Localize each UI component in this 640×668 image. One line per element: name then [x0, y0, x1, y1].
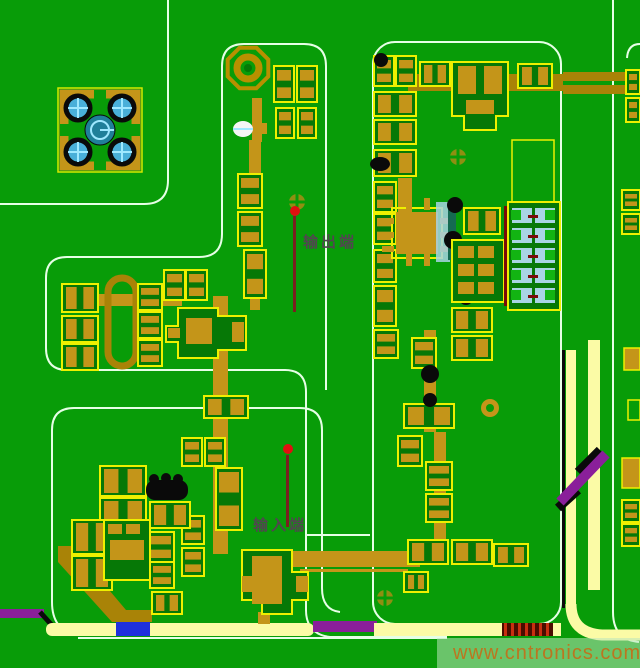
- pad: [170, 595, 178, 611]
- header-pad-green: [545, 270, 555, 280]
- trace-hatch-bar: [525, 623, 528, 636]
- pad: [478, 282, 494, 294]
- trace-pale-tail: [553, 623, 561, 636]
- pad: [167, 274, 182, 282]
- pad: [377, 334, 395, 342]
- pad: [412, 543, 424, 561]
- smd-component: [404, 572, 428, 592]
- smd-component-edge: [626, 70, 640, 94]
- header-pad-green: [545, 210, 555, 220]
- header-trace: [528, 235, 538, 238]
- pad: [401, 440, 419, 448]
- input-port-label: 输入端: [253, 518, 307, 533]
- pad: [538, 67, 548, 85]
- pad: [429, 466, 449, 474]
- qfn-pin: [406, 198, 412, 210]
- trace-pale-vertical: [566, 350, 576, 608]
- component-black: [149, 474, 159, 484]
- pad: [429, 498, 449, 506]
- pad: [434, 407, 450, 425]
- marker-dot-input: [283, 444, 293, 454]
- smd-component: [138, 340, 162, 366]
- pad: [625, 201, 637, 206]
- pad: [399, 60, 413, 68]
- pad: [66, 347, 77, 367]
- pad: [625, 194, 637, 199]
- trace-input-feed: [288, 551, 420, 567]
- pad: [377, 346, 395, 354]
- pad: [377, 310, 393, 322]
- pad: [141, 288, 159, 295]
- pad: [458, 282, 474, 294]
- header-trace: [528, 295, 538, 298]
- qfn-pin: [382, 246, 394, 252]
- pad: [83, 287, 94, 309]
- pad: [458, 246, 474, 258]
- qfn-plate: [396, 212, 438, 254]
- pad: [476, 339, 488, 357]
- header-pad-green: [511, 270, 521, 280]
- pad: [141, 316, 159, 323]
- pad: [230, 399, 244, 415]
- pad: [128, 469, 142, 493]
- pad: [418, 575, 424, 589]
- pad: [154, 505, 166, 525]
- pad: [76, 559, 88, 587]
- header-pad-green: [511, 230, 521, 240]
- pad: [625, 528, 637, 533]
- pad: [484, 66, 502, 94]
- pad: [408, 575, 414, 589]
- trace-hatch-bar: [532, 623, 535, 636]
- smd-component-edge: [622, 190, 640, 210]
- smd-component-edge: [622, 524, 640, 546]
- pad: [478, 264, 494, 276]
- header-pad-green: [545, 250, 555, 260]
- pad: [399, 95, 412, 113]
- trace-output-line: [249, 140, 261, 176]
- pad: [174, 505, 186, 525]
- pad: [522, 67, 532, 85]
- pad: [456, 543, 468, 561]
- pad: [83, 347, 94, 367]
- header-pad-green: [545, 230, 555, 240]
- pad: [514, 547, 524, 563]
- pad: [110, 540, 144, 560]
- watermark-band: www.cntronics.com: [437, 638, 640, 668]
- trace-hatch-bar: [518, 623, 521, 636]
- pad: [277, 70, 291, 81]
- pad: [498, 547, 508, 563]
- smd-component-edge: [622, 214, 640, 234]
- pcb-layout-screenshot: 输出端 输入端 www.cntronics.com: [0, 0, 640, 668]
- sma-slot: [60, 124, 69, 136]
- pad: [629, 74, 637, 80]
- marker-line-output: [293, 216, 296, 312]
- pad: [241, 194, 259, 204]
- pad: [301, 112, 313, 120]
- pad: [153, 566, 171, 573]
- trace-pale-bottom: [374, 623, 504, 636]
- pad: [156, 595, 164, 611]
- smd-component-edge: [622, 500, 640, 522]
- smd-component-edge: [626, 98, 640, 122]
- trace-blue-segment: [116, 622, 150, 636]
- pad: [167, 288, 182, 296]
- pad: [208, 442, 222, 450]
- watermark-text: www.cntronics.com: [437, 642, 640, 665]
- pad: [429, 478, 449, 486]
- pad: [185, 532, 201, 540]
- trace-hatch-bar: [504, 623, 507, 636]
- pad: [126, 524, 140, 534]
- pad: [468, 211, 479, 231]
- trace-hatch-bar: [539, 623, 542, 636]
- pad: [241, 216, 259, 226]
- pad: [241, 178, 259, 188]
- pad: [629, 84, 637, 90]
- pad-edge: [622, 458, 640, 488]
- pad: [279, 112, 291, 120]
- sma-slot: [94, 161, 106, 170]
- pad: [415, 356, 433, 364]
- trace-shadow: [562, 350, 565, 608]
- pad: [485, 211, 496, 231]
- header-redline: [504, 206, 507, 306]
- trace-pale-bottom: [46, 623, 314, 636]
- pad: [279, 126, 291, 134]
- pad: [377, 290, 393, 302]
- pad: [401, 454, 419, 462]
- trace-purple-bottom: [313, 621, 377, 632]
- pad: [458, 264, 474, 276]
- pad: [151, 550, 171, 558]
- component-black: [173, 474, 183, 484]
- pad: [151, 536, 171, 544]
- trace-output-line: [252, 98, 262, 142]
- pcb-canvas: [0, 0, 640, 668]
- pad: [625, 225, 637, 230]
- header-pad-green: [511, 250, 521, 260]
- pad: [186, 318, 212, 344]
- pad: [456, 339, 468, 357]
- pad: [377, 74, 391, 82]
- via-black: [423, 393, 437, 407]
- pad: [104, 469, 118, 493]
- pad: [66, 287, 77, 309]
- header-pad-green: [545, 290, 555, 300]
- pad: [424, 65, 432, 83]
- pad: [232, 322, 244, 342]
- component-black: [161, 473, 171, 483]
- via-black: [374, 53, 388, 67]
- pad: [66, 319, 77, 339]
- pad: [301, 126, 313, 134]
- pad: [377, 269, 393, 278]
- pad: [456, 311, 468, 329]
- trace-purple-left: [0, 609, 44, 618]
- pad: [429, 510, 449, 518]
- smd-component: [138, 284, 162, 310]
- pad: [415, 342, 433, 350]
- pad: [438, 65, 446, 83]
- pad: [476, 543, 488, 561]
- solder-streak: [436, 202, 450, 262]
- pad: [252, 556, 282, 604]
- pad: [141, 327, 159, 334]
- pad: [277, 87, 291, 98]
- pad: [378, 95, 391, 113]
- qfn-pin: [406, 254, 412, 266]
- qfn-pin: [424, 198, 430, 210]
- pad: [625, 513, 637, 518]
- pad: [625, 537, 637, 542]
- pad: [241, 232, 259, 242]
- pad: [253, 123, 267, 134]
- pad: [208, 399, 222, 415]
- trace-hatch-bar: [546, 623, 549, 636]
- round-pad-hole: [486, 404, 494, 412]
- pad: [247, 254, 263, 269]
- via-black: [370, 157, 390, 171]
- pad: [378, 123, 391, 141]
- pad: [247, 279, 263, 294]
- pad: [153, 577, 171, 584]
- trace-input-feed-thin: [300, 569, 408, 572]
- via-black: [421, 365, 439, 383]
- pad: [76, 523, 88, 551]
- qfn-pin: [382, 232, 394, 238]
- smd-component: [150, 562, 174, 588]
- pad: [458, 66, 476, 94]
- pad: [219, 505, 239, 526]
- header-trace: [528, 275, 538, 278]
- pad: [141, 355, 159, 362]
- pad: [141, 344, 159, 351]
- pad: [83, 319, 94, 339]
- pad: [185, 564, 201, 572]
- trace-hatch-bar: [511, 623, 514, 636]
- pad: [625, 504, 637, 509]
- pad: [242, 576, 254, 592]
- via-black: [447, 197, 463, 213]
- pad: [185, 552, 201, 560]
- header-pad-green: [511, 210, 521, 220]
- pad: [300, 87, 314, 98]
- pad: [377, 200, 393, 208]
- pad-edge: [624, 348, 640, 370]
- pad: [629, 112, 637, 118]
- header-trace: [528, 215, 538, 218]
- pad: [219, 472, 239, 493]
- sma-slot: [94, 90, 106, 99]
- pad: [141, 299, 159, 306]
- pad: [478, 246, 494, 258]
- pad: [377, 254, 393, 263]
- qfn-pin: [424, 254, 430, 266]
- sma-slot: [131, 124, 140, 136]
- pad: [189, 288, 204, 296]
- octagon-hole: [244, 64, 252, 72]
- pad: [476, 311, 488, 329]
- pad: [185, 454, 199, 462]
- pad: [466, 100, 494, 114]
- pad: [625, 218, 637, 223]
- pad: [377, 186, 393, 194]
- pad: [189, 274, 204, 282]
- output-port-label: 输出端: [303, 235, 357, 250]
- pad: [300, 70, 314, 81]
- marker-dot-output: [290, 206, 300, 216]
- pad: [185, 442, 199, 450]
- pad: [296, 576, 308, 592]
- pad: [168, 328, 180, 338]
- header-trace: [528, 255, 538, 258]
- pad: [399, 74, 413, 82]
- header-pad-green: [511, 290, 521, 300]
- pad: [399, 153, 412, 173]
- pad: [208, 454, 222, 462]
- pad: [399, 123, 412, 141]
- qfn-pin: [382, 218, 394, 224]
- smd-component: [138, 312, 162, 338]
- pad: [408, 407, 424, 425]
- pad: [108, 524, 122, 534]
- pad: [432, 543, 444, 561]
- pad: [629, 102, 637, 108]
